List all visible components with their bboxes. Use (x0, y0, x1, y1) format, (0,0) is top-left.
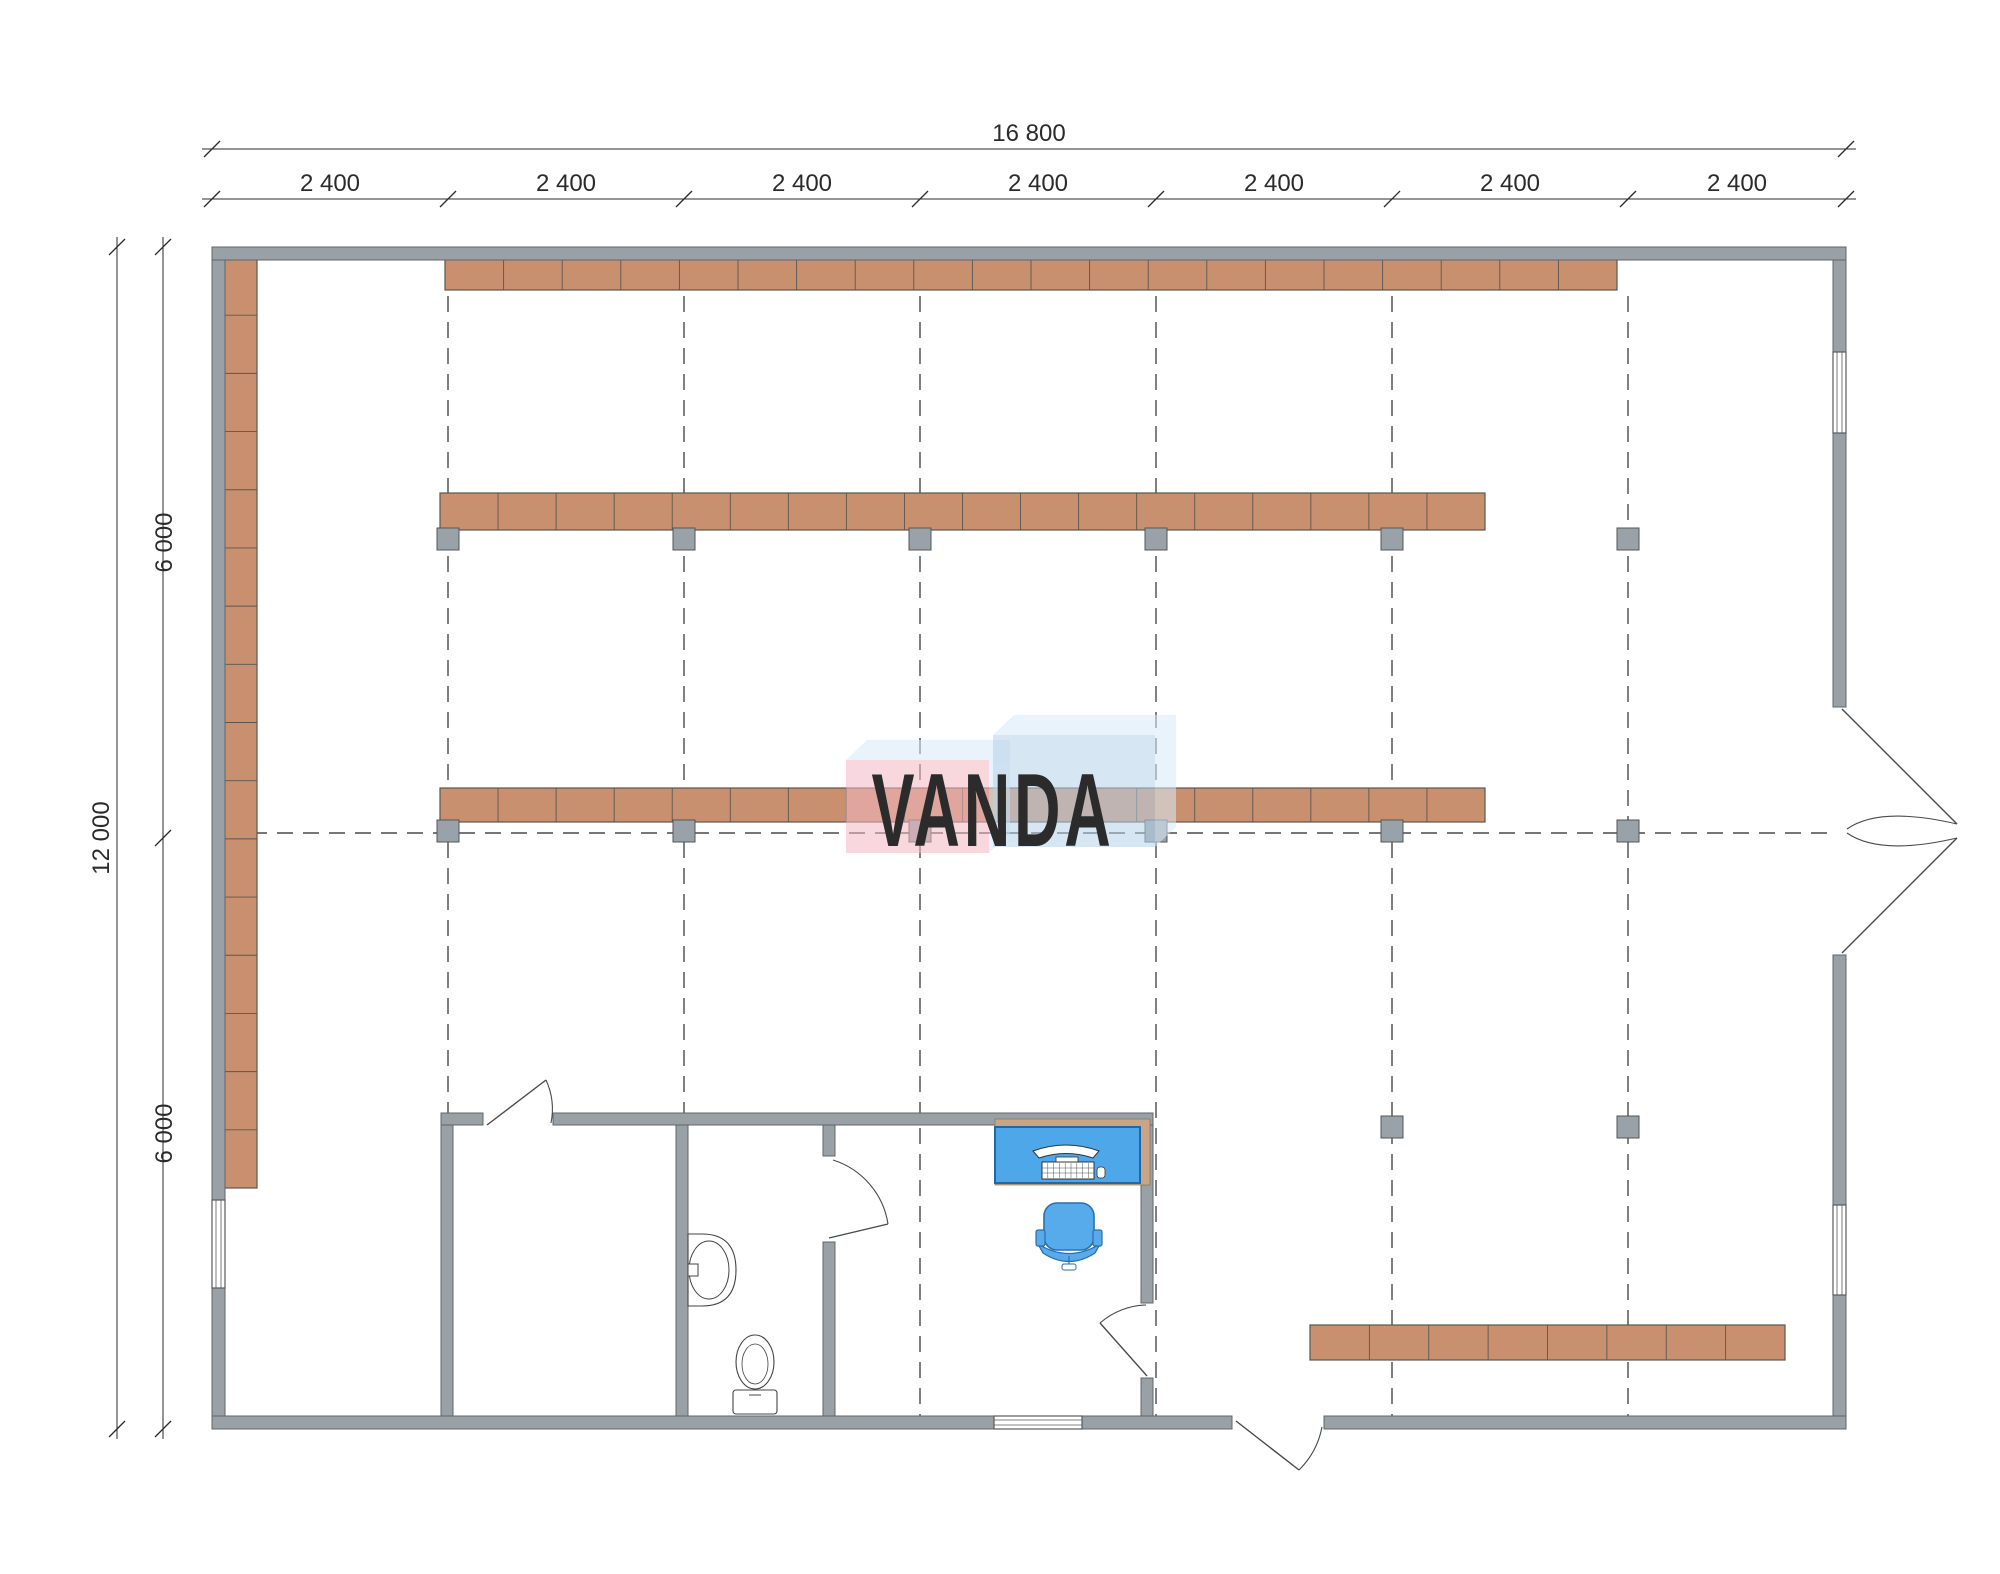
window-frame (212, 1200, 225, 1288)
office-chair (1036, 1203, 1102, 1270)
toilet (733, 1335, 777, 1414)
mouse-icon (1097, 1167, 1105, 1178)
door-office (1100, 1305, 1147, 1376)
floor-plan-canvas: VANDA 16 800 12 000 2 4002 4002 4002 400… (0, 0, 2000, 1574)
window-frame (1833, 1205, 1846, 1295)
exterior-wall (1833, 260, 1846, 352)
exterior-wall (1324, 1416, 1846, 1429)
interior-wall (823, 1125, 835, 1156)
dimension-segment-label: 6 000 (151, 1103, 178, 1163)
shelf-row (440, 493, 1485, 530)
dimension-total-width: 16 800 (992, 120, 1065, 147)
toilet-seat (742, 1344, 768, 1384)
column-post (1381, 528, 1403, 550)
door-leaf (487, 1080, 546, 1125)
window (212, 1200, 225, 1288)
column-post (437, 528, 459, 550)
office-desk (995, 1119, 1150, 1185)
keyboard-icon (1042, 1162, 1094, 1179)
dimension-segment-label: 2 400 (536, 170, 596, 197)
column-post (1381, 1116, 1403, 1138)
door-leaf (1100, 1323, 1147, 1376)
door-swing-arc (546, 1080, 552, 1123)
column-post (1381, 820, 1403, 842)
door-storage (487, 1080, 552, 1125)
exterior-wall (1833, 1295, 1846, 1416)
chair-armrest (1036, 1230, 1045, 1246)
door-swing-arc (1100, 1305, 1146, 1323)
shelf-row (1310, 1325, 1785, 1360)
interior-wall (441, 1125, 453, 1416)
door-leaf (1236, 1421, 1299, 1470)
exterior-wall (1833, 955, 1846, 1205)
door-exit-south (1236, 1421, 1322, 1470)
column-post (673, 820, 695, 842)
door-entrance-leaf-top (1842, 709, 1957, 829)
interior-wall (823, 1242, 835, 1416)
window (1833, 352, 1846, 433)
column-post (1617, 820, 1639, 842)
interior-wall (1141, 1378, 1153, 1416)
chair-base (1062, 1264, 1076, 1270)
chair-armrest (1093, 1230, 1102, 1246)
sink-faucet (688, 1264, 698, 1276)
dimension-segment-label: 2 400 (1707, 170, 1767, 197)
exterior-wall (212, 260, 225, 1200)
door-swing-arc (833, 1160, 888, 1224)
door-leaf (1842, 838, 1957, 953)
column-post (909, 528, 931, 550)
door-swing-arc (1299, 1427, 1322, 1470)
floor-plan-page: VANDA 16 800 12 000 2 4002 4002 4002 400… (0, 0, 2000, 1574)
keyboard-body (1042, 1162, 1094, 1179)
dimension-segment-label: 2 400 (300, 170, 360, 197)
column-post (1145, 528, 1167, 550)
box-side-face (1155, 715, 1176, 847)
window-frame (1833, 352, 1846, 433)
window-frame (994, 1416, 1082, 1429)
door-leaf (829, 1224, 888, 1238)
box-top-face (993, 715, 1176, 735)
dimension-segment-label: 2 400 (772, 170, 832, 197)
dimension-segment-label: 2 400 (1008, 170, 1068, 197)
dimension-segment-label: 2 400 (1244, 170, 1304, 197)
interior-wall (676, 1125, 688, 1416)
shelf-row (445, 256, 1617, 290)
column-post (437, 820, 459, 842)
bathroom-sink (688, 1234, 736, 1306)
toilet-tank (733, 1390, 777, 1414)
watermark-text: VANDA (871, 753, 1114, 868)
door-swing-arc (1847, 816, 1957, 829)
door-entrance-leaf-bottom (1842, 833, 1957, 953)
column-post (673, 528, 695, 550)
column-post (1617, 1116, 1639, 1138)
dimension-segment-label: 2 400 (1480, 170, 1540, 197)
door-leaf (1842, 709, 1957, 824)
column-post (1617, 528, 1639, 550)
exterior-wall (212, 1288, 225, 1416)
dimension-total-height: 12 000 (88, 801, 115, 874)
interior-wall (441, 1113, 483, 1125)
shelf-column (224, 257, 257, 1188)
dimension-segment-label: 6 000 (151, 512, 178, 572)
exterior-wall (212, 247, 1846, 260)
window (994, 1416, 1082, 1429)
door-swing-arc (1847, 833, 1957, 846)
chair-seat (1044, 1203, 1094, 1250)
vanda-watermark: VANDA (846, 715, 1176, 869)
door-toilet (829, 1160, 888, 1238)
window (1833, 1205, 1846, 1295)
exterior-wall (1833, 433, 1846, 707)
furniture (688, 1119, 1150, 1414)
